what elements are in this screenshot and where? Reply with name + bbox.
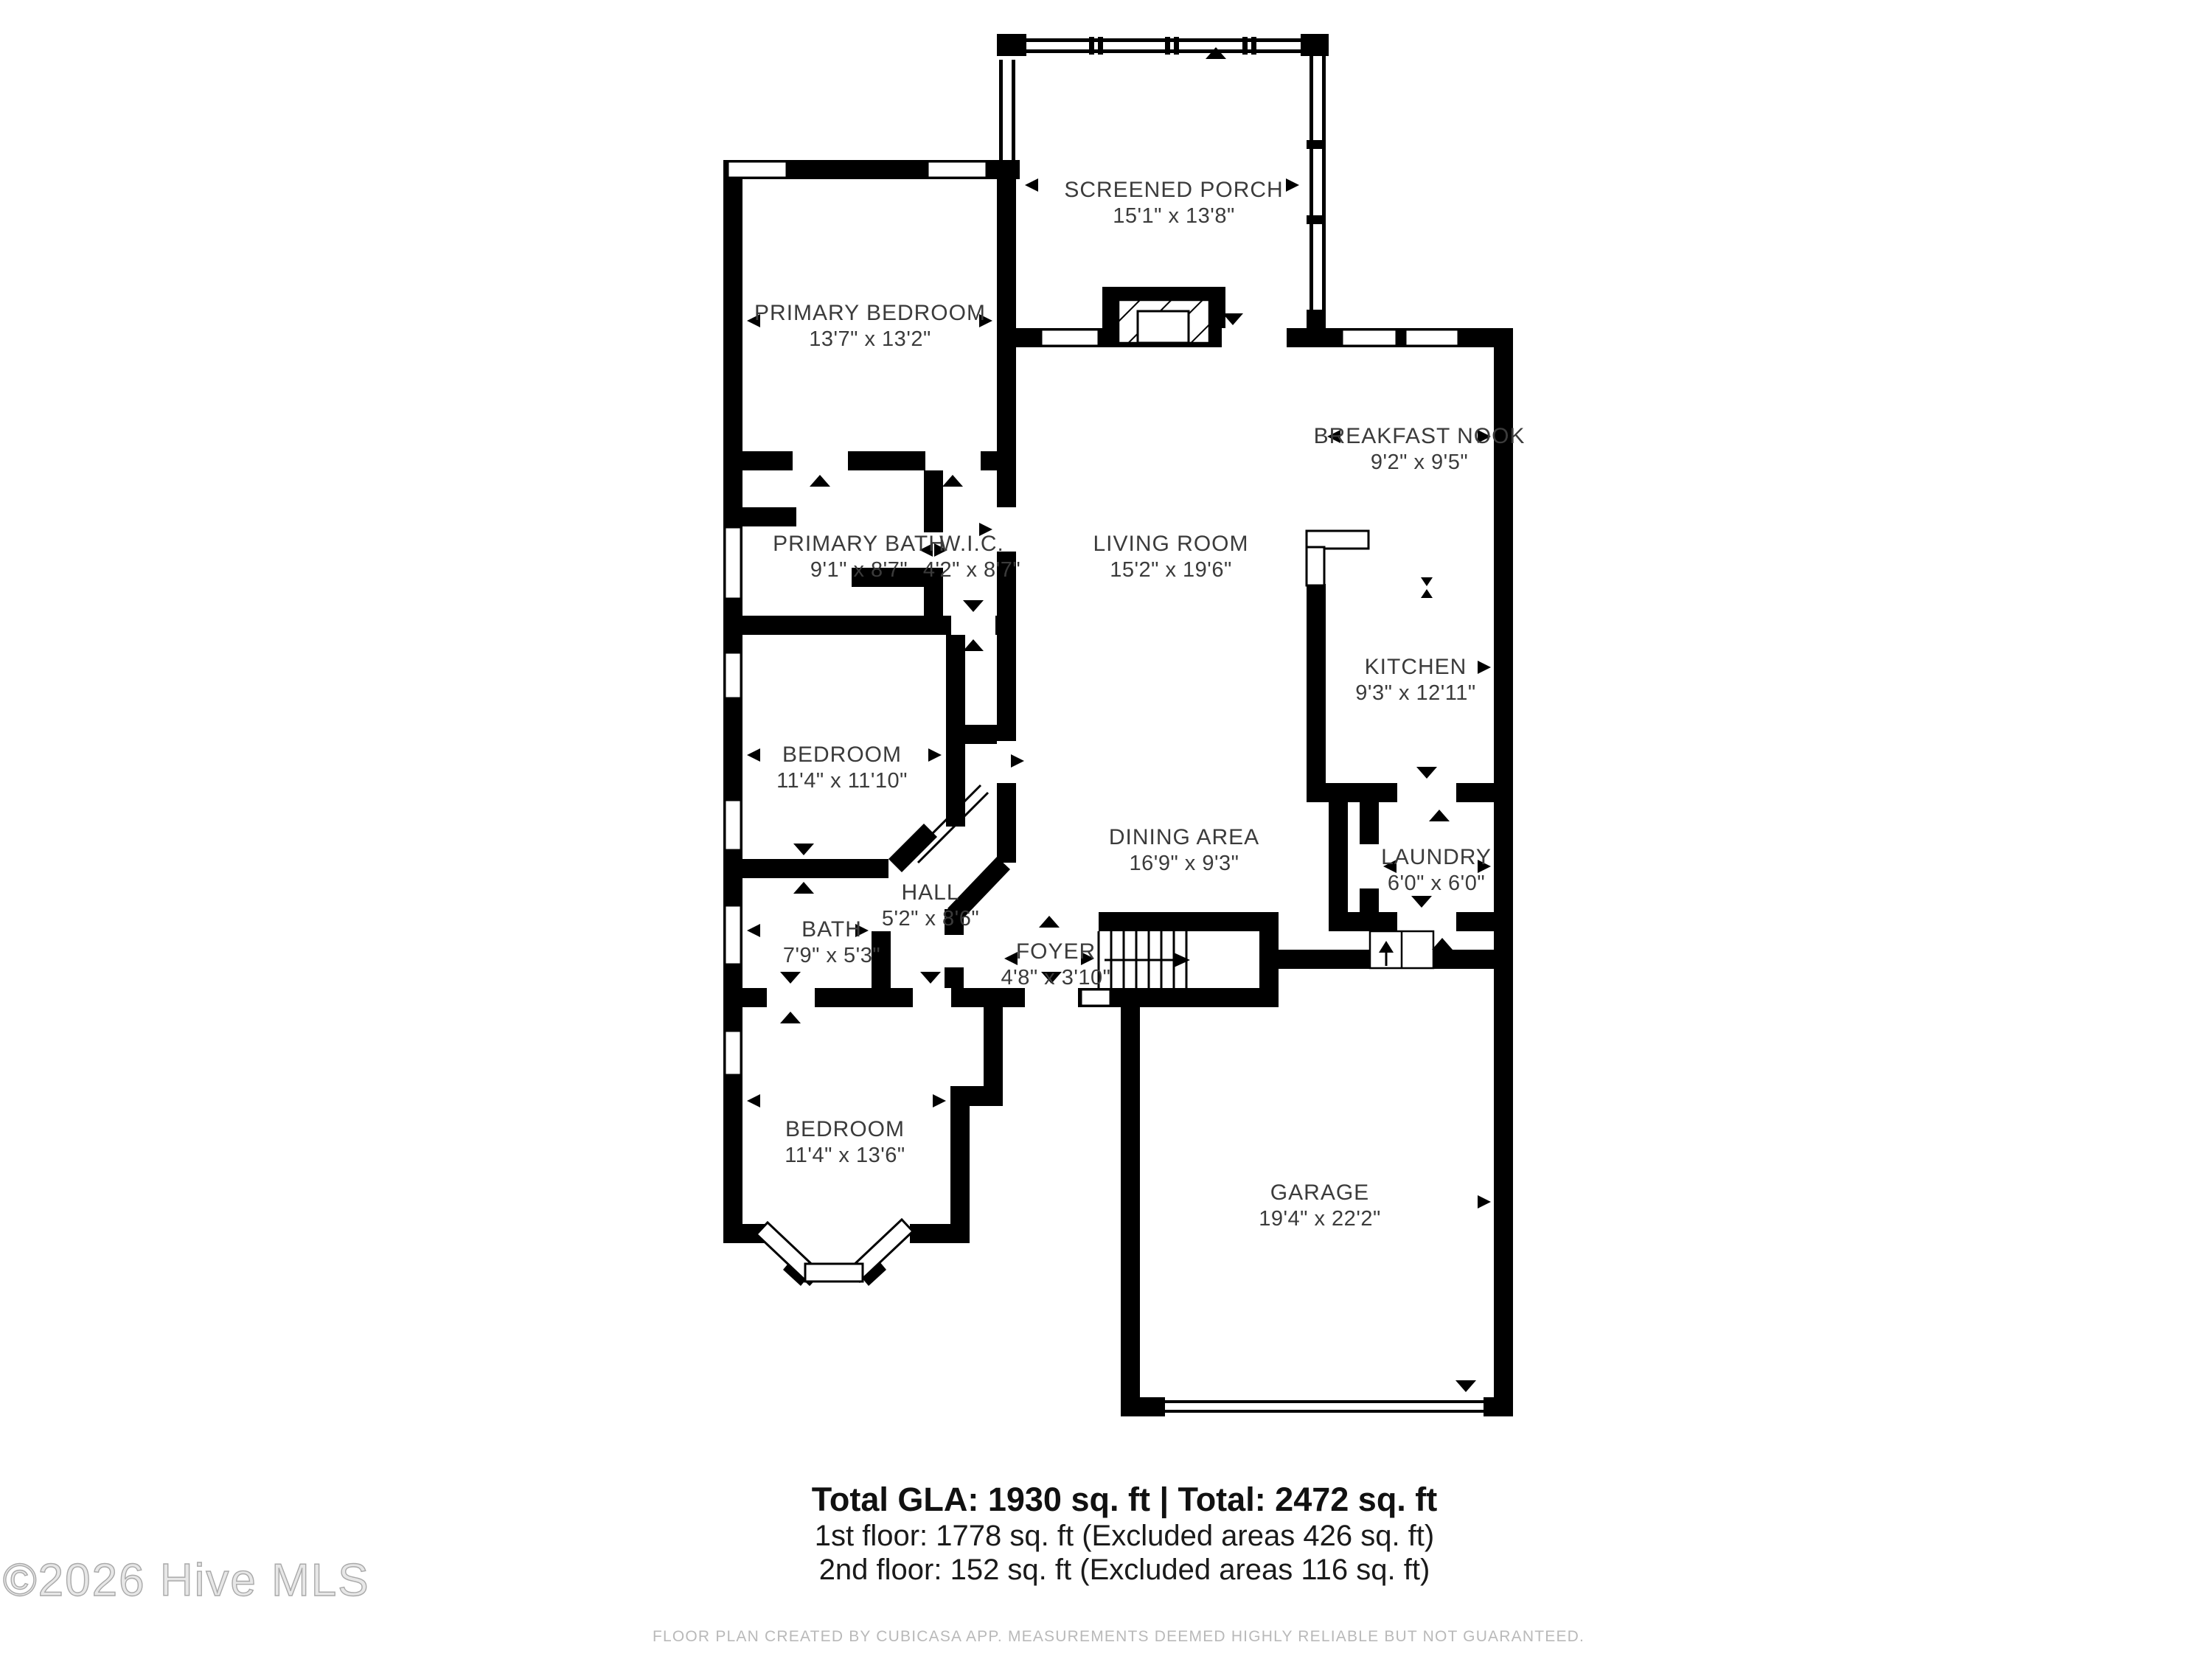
floor-plan-drawing — [0, 0, 2212, 1659]
counter-horizontal — [1307, 531, 1368, 549]
wall-kitchen-peninsula — [1307, 584, 1326, 783]
fireplace — [1119, 300, 1209, 343]
porch-screen-top-line — [1026, 49, 1301, 53]
marker-kitchen-hourglass-top — [1421, 577, 1433, 586]
wall-bath-shelf — [852, 568, 943, 587]
wall-bath-wic-divider-upper — [924, 470, 943, 532]
marker-porch-door — [1222, 313, 1243, 325]
marker-hall-door — [920, 972, 941, 984]
wall-stairs-right — [1259, 931, 1279, 1007]
marker-bedroom-mid-wall-bottom — [793, 882, 814, 894]
door-gap-primary-1 — [793, 451, 848, 470]
wall-closet-bottom — [1329, 912, 1360, 931]
wall-corridor-left — [946, 635, 965, 827]
porch-screen-right-line — [1322, 56, 1326, 310]
opening-markers — [747, 47, 1491, 1392]
marker-laundry-bottom-1 — [1411, 896, 1432, 908]
wall-bedroom-bottom-right-lower — [950, 1096, 970, 1243]
marker-porch-right — [1286, 178, 1299, 192]
wall-bath-stub — [742, 507, 796, 526]
marker-garage-right — [1478, 1195, 1491, 1208]
porch-right-bottom-block — [1307, 310, 1326, 328]
window-bedroom-mid-1 — [725, 653, 741, 698]
window-primary-bath — [725, 527, 741, 599]
marker-primary-bedroom-right — [979, 314, 992, 327]
cubicasa-disclaimer: FLOOR PLAN CREATED BY CUBICASA APP. MEAS… — [13, 1628, 2212, 1646]
wall-hall-foyer-upper — [945, 909, 964, 935]
door-gap-bedroom-bottom — [913, 988, 951, 1007]
porch-screen-left-line — [999, 60, 1003, 160]
marker-corridor-door-bottom — [963, 639, 984, 651]
door-gap-wic — [997, 507, 1016, 552]
marker-bath-door-left — [919, 543, 933, 557]
window-porch-wall-left — [1041, 330, 1099, 346]
marker-garage-door — [1455, 1380, 1476, 1392]
garage-door-line — [1165, 1400, 1484, 1403]
marker-laundry-bottom-2 — [1432, 938, 1453, 950]
porch-screen-top-line — [1026, 38, 1301, 42]
first-floor-line: 1st floor: 1778 sq. ft (Excluded areas 4… — [18, 1519, 2212, 1553]
marker-bedroom-bottom-right — [933, 1094, 946, 1107]
wall-closet-left — [1329, 802, 1348, 931]
door-gap-front-entry — [1025, 988, 1078, 1007]
window-foyer — [1081, 990, 1110, 1006]
door-gap-laundry-bottom — [1397, 912, 1456, 931]
floor-plan-page: { "rooms": { "screened_porch": {"name": … — [0, 0, 2212, 1659]
entry-step — [1370, 931, 1433, 968]
porch-screen-right-line — [1310, 56, 1313, 310]
wall-stairs-top — [1099, 912, 1279, 931]
door-gap-laundry-top — [1397, 783, 1456, 802]
marker-corridor-door-top — [963, 600, 984, 612]
marker-primary-bedroom-left — [747, 314, 760, 327]
door-gap-corridor — [951, 616, 995, 635]
fireplace-firebox — [1138, 311, 1189, 343]
bay-window-center — [805, 1264, 863, 1281]
window-primary-bedroom-2 — [928, 161, 987, 178]
marker-laundry-top-1 — [1416, 767, 1437, 779]
walls — [723, 34, 1513, 1416]
total-gla-line: Total GLA: 1930 sq. ft | Total: 2472 sq.… — [18, 1481, 2212, 1519]
window-bedroom-mid-2 — [725, 800, 741, 850]
window-bath — [725, 905, 741, 964]
marker-foyer-top — [1039, 916, 1060, 928]
wall-bedroom-bottom-right-upper — [984, 1007, 1003, 1096]
wall-corridor-stub — [965, 725, 997, 744]
windows — [725, 161, 1458, 1284]
marker-bath-door-bottom — [780, 1012, 801, 1023]
wall-laundry-left-upper — [1360, 802, 1379, 844]
door-leaf-line — [911, 785, 981, 855]
counter-vertical — [1307, 547, 1324, 585]
marker-bath-door-top — [780, 972, 801, 984]
kitchen-counter — [1307, 531, 1368, 585]
marker-primary-door-2 — [942, 475, 963, 487]
marker-bedroom-mid-wall-top — [793, 844, 814, 855]
marker-foyer-right — [1081, 952, 1094, 965]
marker-front-door — [1041, 972, 1062, 984]
marker-bedroom-mid-left — [747, 748, 760, 762]
marker-laundry-right — [1478, 860, 1491, 873]
porch-screen-left-line — [1012, 60, 1015, 160]
marker-laundry-left — [1383, 860, 1397, 873]
wall-exterior-right — [1494, 328, 1513, 1416]
marker-laundry-top-2 — [1429, 810, 1450, 821]
marker-kitchen-right — [1478, 661, 1491, 674]
window-primary-bedroom-1 — [728, 161, 787, 178]
wall-bay-right — [910, 1224, 964, 1243]
door-gap-primary-2 — [925, 451, 981, 470]
marker-nook-left — [1327, 430, 1340, 443]
window-breakfast-nook-2 — [1405, 330, 1458, 346]
window-breakfast-nook-1 — [1342, 330, 1397, 346]
porch-corner-block-left — [997, 34, 1026, 56]
marker-bedroom-bottom-left — [747, 1094, 760, 1107]
marker-primary-door-1 — [810, 475, 830, 487]
marker-bath-door-right — [934, 543, 947, 557]
wall-garage-left — [1121, 1007, 1140, 1416]
door-gap-porch — [1222, 328, 1287, 347]
marker-bath-right — [855, 924, 869, 937]
marker-kitchen-hourglass-bottom — [1421, 589, 1433, 598]
marker-porch-left — [1025, 178, 1038, 192]
marker-dining-door — [1011, 754, 1024, 768]
garage-door-gap — [1165, 1397, 1484, 1416]
wall-bedroom-diagonal — [888, 824, 937, 872]
stair-direction-arrow — [1174, 953, 1190, 967]
mls-watermark: ©2026 Hive MLS — [3, 1554, 370, 1607]
garage-door-line — [1165, 1410, 1484, 1413]
marker-wic-door — [979, 523, 992, 536]
marker-bedroom-mid-right — [928, 748, 942, 762]
door-gap-bath — [767, 988, 815, 1007]
marker-foyer-left — [1004, 952, 1018, 965]
porch-corner-block-right — [1301, 34, 1329, 56]
marker-nook-right — [1478, 430, 1491, 443]
wall-bedroom-mid-bottom — [723, 859, 888, 878]
staircase — [1099, 931, 1190, 988]
marker-bath-left — [747, 924, 760, 937]
window-bedroom-bottom — [725, 1031, 741, 1075]
